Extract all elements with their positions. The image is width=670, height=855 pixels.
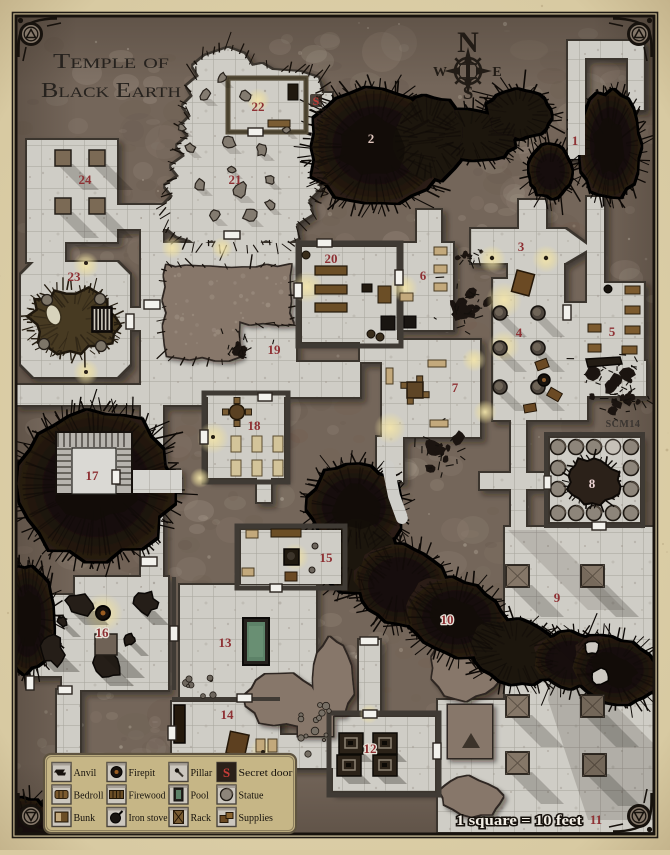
svg-text:18: 18	[248, 418, 262, 433]
svg-text:SCM14: SCM14	[606, 419, 641, 430]
svg-text:6: 6	[420, 268, 427, 283]
svg-text:22: 22	[252, 99, 265, 114]
svg-text:S: S	[223, 765, 230, 780]
svg-text:Pool: Pool	[191, 791, 210, 802]
svg-text:7: 7	[452, 380, 459, 395]
svg-text:W: W	[433, 65, 447, 80]
svg-text:Iron stove: Iron stove	[129, 813, 169, 824]
svg-text:14: 14	[221, 707, 235, 722]
svg-text:Bedroll: Bedroll	[74, 791, 104, 802]
svg-text:S: S	[313, 94, 320, 108]
svg-text:24: 24	[79, 172, 93, 187]
svg-text:11: 11	[590, 812, 602, 827]
svg-text:N: N	[457, 26, 479, 59]
svg-text:20: 20	[325, 251, 338, 266]
svg-text:10: 10	[441, 612, 454, 627]
svg-text:9: 9	[554, 590, 561, 605]
svg-text:Firepit: Firepit	[129, 768, 156, 779]
svg-text:12: 12	[364, 741, 377, 756]
svg-text:8: 8	[589, 476, 596, 491]
svg-text:Rack: Rack	[191, 813, 212, 824]
svg-text:E: E	[492, 65, 501, 80]
svg-text:4: 4	[516, 325, 523, 340]
svg-text:Statue: Statue	[239, 791, 265, 802]
svg-text:Black Earth: Black Earth	[41, 78, 181, 102]
svg-text:2: 2	[368, 131, 375, 146]
svg-text:15: 15	[320, 550, 334, 565]
svg-text:Temple of: Temple of	[53, 49, 169, 73]
svg-text:21: 21	[229, 172, 242, 187]
svg-text:Pillar: Pillar	[191, 768, 213, 779]
svg-text:Secret door: Secret door	[239, 768, 294, 779]
svg-text:3: 3	[518, 239, 525, 254]
svg-text:S: S	[463, 83, 474, 104]
svg-text:Supplies: Supplies	[239, 813, 274, 824]
svg-text:13: 13	[219, 635, 233, 650]
svg-text:16: 16	[96, 625, 110, 640]
svg-text:19: 19	[268, 342, 282, 357]
svg-text:5: 5	[609, 324, 616, 339]
svg-text:23: 23	[68, 269, 82, 284]
svg-text:1 square = 10 feet: 1 square = 10 feet	[456, 813, 582, 829]
svg-text:Bunk: Bunk	[74, 813, 96, 824]
svg-text:Anvil: Anvil	[74, 768, 97, 779]
svg-text:17: 17	[86, 468, 100, 483]
svg-text:Firewood: Firewood	[129, 791, 166, 802]
svg-text:1: 1	[572, 133, 579, 148]
